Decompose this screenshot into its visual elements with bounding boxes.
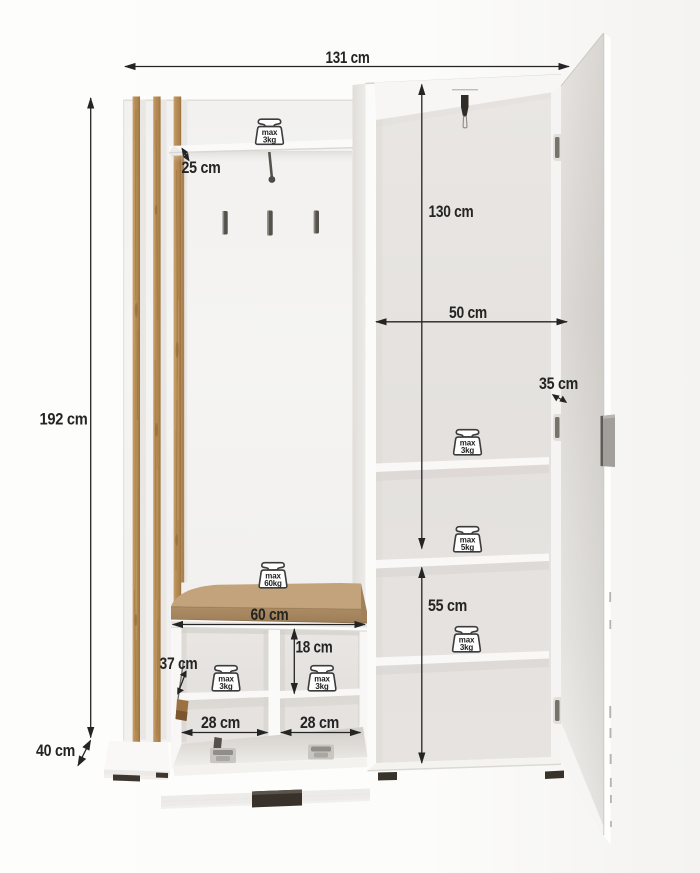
svg-text:35 cm: 35 cm bbox=[539, 375, 578, 393]
svg-text:40 cm: 40 cm bbox=[36, 742, 75, 760]
svg-text:50 cm: 50 cm bbox=[449, 304, 487, 322]
svg-text:3kg: 3kg bbox=[219, 682, 232, 691]
svg-text:60 cm: 60 cm bbox=[251, 606, 289, 624]
svg-text:60kg: 60kg bbox=[264, 579, 282, 588]
svg-text:25 cm: 25 cm bbox=[182, 159, 221, 177]
svg-text:55 cm: 55 cm bbox=[428, 597, 467, 615]
svg-text:192 cm: 192 cm bbox=[40, 411, 88, 429]
svg-text:28 cm: 28 cm bbox=[300, 714, 339, 732]
svg-text:3kg: 3kg bbox=[263, 136, 276, 145]
svg-text:130 cm: 130 cm bbox=[429, 203, 474, 221]
svg-text:28 cm: 28 cm bbox=[201, 714, 240, 732]
svg-text:3kg: 3kg bbox=[460, 643, 473, 652]
svg-text:3kg: 3kg bbox=[315, 682, 328, 691]
svg-text:18 cm: 18 cm bbox=[296, 639, 333, 657]
svg-text:3kg: 3kg bbox=[461, 446, 474, 455]
svg-text:37 cm: 37 cm bbox=[160, 655, 198, 673]
svg-text:5kg: 5kg bbox=[461, 543, 474, 552]
svg-text:131 cm: 131 cm bbox=[326, 49, 370, 67]
